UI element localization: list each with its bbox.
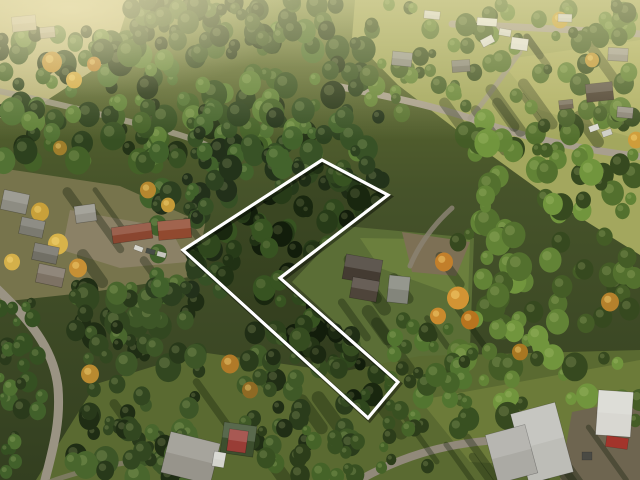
building-red-roof-b (157, 219, 192, 241)
shed-east-gray (387, 275, 411, 304)
aerial-photo-svg (0, 0, 640, 480)
garden-red-deck (227, 429, 249, 453)
house-east-wing (349, 277, 379, 302)
shed-white-bottom-center (212, 451, 226, 468)
shed-bottom-right-white (595, 390, 633, 437)
car-bottom-right-dark (582, 452, 592, 460)
shed-left-clearing (74, 204, 97, 224)
aerial-photo (0, 0, 640, 480)
